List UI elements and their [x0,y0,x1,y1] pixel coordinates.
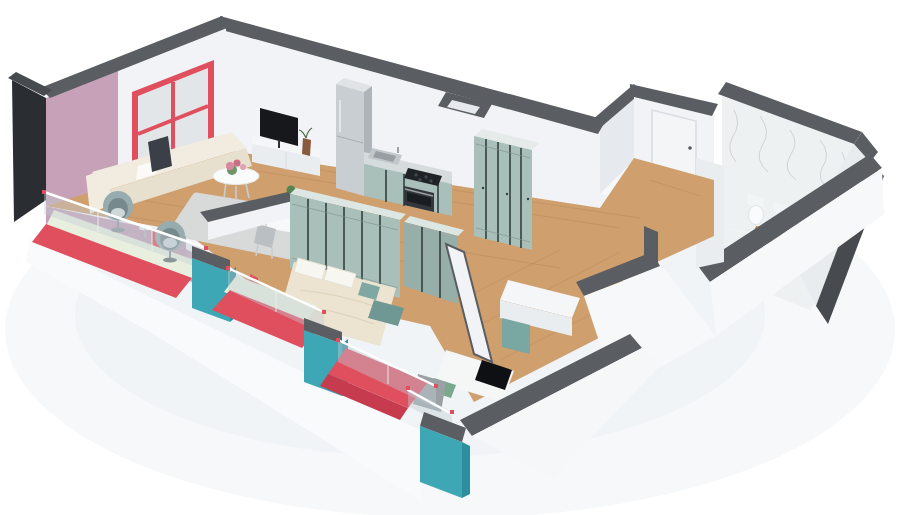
wall-art [148,136,172,172]
floorplan-render [0,0,900,515]
door-handle [688,146,692,150]
floorplan-canvas [0,0,900,515]
hall-south-jog-cap [644,226,658,266]
toilet [747,194,764,225]
hall-wardrobe [474,129,540,250]
west-outer-dark-wall [12,80,46,222]
